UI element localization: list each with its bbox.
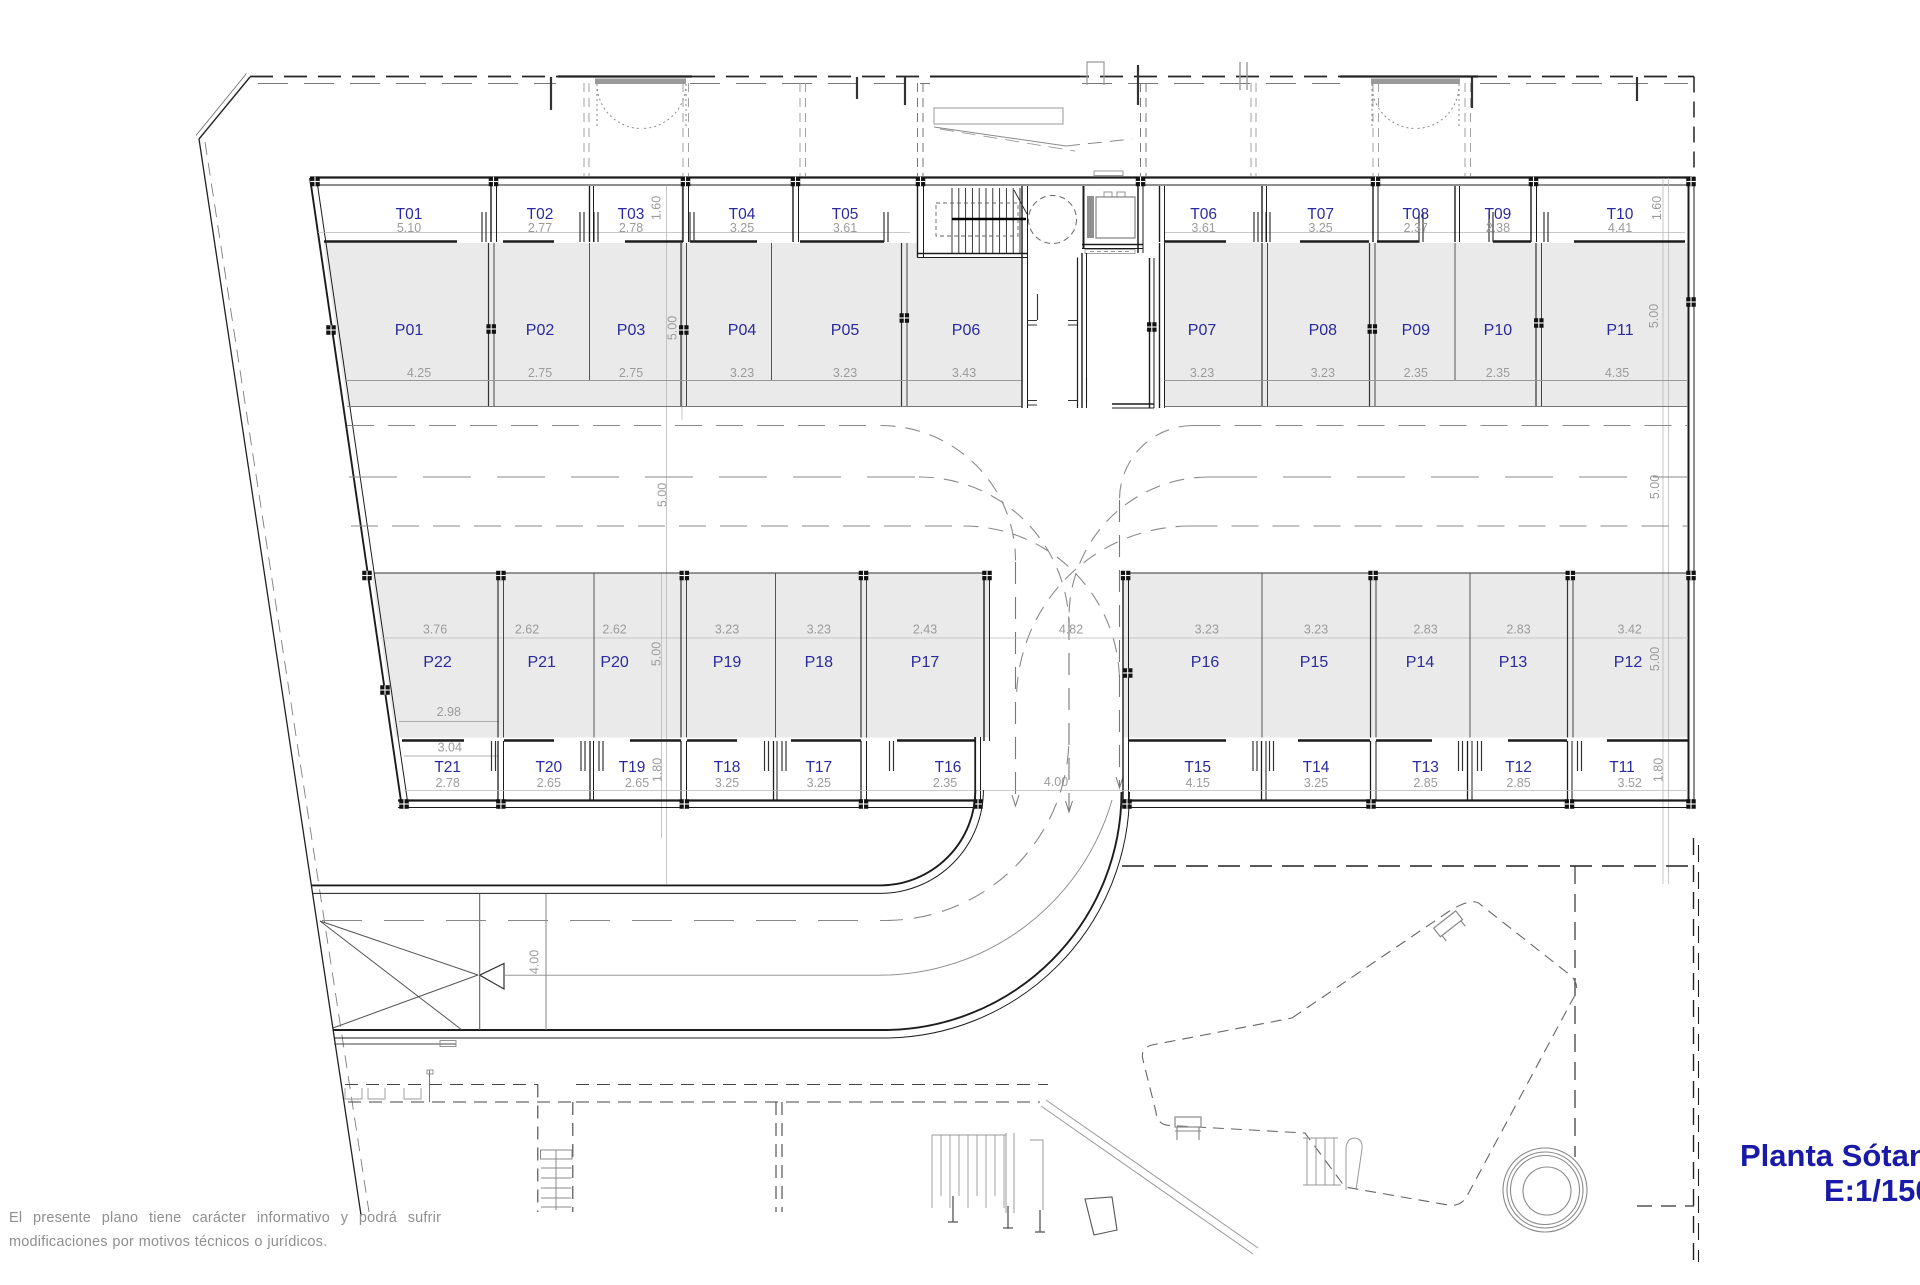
svg-text:2.75: 2.75 [528,366,552,380]
svg-text:P02: P02 [526,322,555,339]
svg-text:T12: T12 [1505,759,1532,776]
svg-text:modificaciones por motivos téc: modificaciones por motivos técnicos o ju… [9,1234,327,1250]
svg-text:3.23: 3.23 [715,623,739,637]
svg-text:P11: P11 [1606,322,1633,339]
svg-text:4.15: 4.15 [1186,776,1210,790]
svg-text:2.43: 2.43 [913,623,937,637]
svg-text:2.62: 2.62 [602,623,626,637]
svg-text:3.25: 3.25 [715,776,739,790]
svg-text:2.83: 2.83 [1506,623,1530,637]
svg-text:2.77: 2.77 [528,221,552,235]
svg-text:P04: P04 [728,322,757,339]
svg-text:P14: P14 [1406,654,1435,671]
svg-text:P07: P07 [1188,322,1217,339]
svg-text:3.52: 3.52 [1618,776,1642,790]
svg-text:P05: P05 [831,322,860,339]
svg-text:El presente plano tiene caráct: El presente plano tiene carácter informa… [9,1210,441,1226]
svg-text:3.25: 3.25 [1308,221,1332,235]
svg-text:5.00: 5.00 [666,316,680,340]
svg-text:P20: P20 [600,654,629,671]
svg-text:T21: T21 [434,759,461,776]
svg-text:3.23: 3.23 [1190,366,1214,380]
svg-text:T13: T13 [1412,759,1439,776]
svg-text:Planta Sótano: Planta Sótano [1740,1138,1920,1173]
svg-text:P17: P17 [911,654,940,671]
svg-text:1.60: 1.60 [1650,196,1664,220]
svg-text:P01: P01 [395,322,424,339]
svg-text:T17: T17 [805,759,832,776]
svg-text:E:1/150: E:1/150 [1824,1173,1920,1208]
svg-text:3.61: 3.61 [1191,221,1215,235]
svg-text:2.85: 2.85 [1413,776,1437,790]
svg-text:1.80: 1.80 [1652,758,1666,782]
svg-text:4.00: 4.00 [527,950,541,974]
svg-text:3.23: 3.23 [833,366,857,380]
svg-text:4.41: 4.41 [1608,221,1632,235]
svg-text:3.25: 3.25 [807,776,831,790]
svg-text:3.25: 3.25 [1304,776,1328,790]
svg-text:1.60: 1.60 [650,196,664,220]
svg-text:2.65: 2.65 [537,776,561,790]
svg-text:5.00: 5.00 [1648,475,1662,499]
svg-text:4.25: 4.25 [407,366,431,380]
svg-text:P21: P21 [527,654,556,671]
svg-text:P18: P18 [805,654,834,671]
svg-text:5.00: 5.00 [656,483,670,507]
svg-text:3.25: 3.25 [730,221,754,235]
svg-text:P10: P10 [1484,322,1513,339]
svg-text:2.35: 2.35 [933,776,957,790]
svg-text:3.04: 3.04 [438,741,462,755]
svg-text:2.38: 2.38 [1486,221,1510,235]
svg-text:2.62: 2.62 [515,623,539,637]
svg-text:3.23: 3.23 [1195,623,1219,637]
svg-text:P06: P06 [952,322,981,339]
svg-text:5.10: 5.10 [397,221,421,235]
svg-text:P22: P22 [423,654,452,671]
svg-text:2.35: 2.35 [1486,366,1510,380]
svg-text:P13: P13 [1499,654,1528,671]
svg-text:P08: P08 [1309,322,1338,339]
svg-text:2.78: 2.78 [436,776,460,790]
svg-text:2.98: 2.98 [437,705,461,719]
svg-text:P19: P19 [713,654,742,671]
svg-text:P03: P03 [617,322,646,339]
svg-text:T20: T20 [535,759,562,776]
svg-text:2.35: 2.35 [1404,366,1428,380]
svg-text:T19: T19 [619,759,646,776]
svg-text:2.83: 2.83 [1413,623,1437,637]
svg-text:P15: P15 [1300,654,1329,671]
svg-text:2.65: 2.65 [625,776,649,790]
svg-text:3.61: 3.61 [833,221,857,235]
svg-text:5.00: 5.00 [650,642,664,666]
svg-text:3.23: 3.23 [1304,623,1328,637]
svg-text:1.80: 1.80 [651,758,665,782]
svg-text:2.75: 2.75 [619,366,643,380]
svg-text:3.23: 3.23 [1311,366,1335,380]
svg-text:T15: T15 [1184,759,1211,776]
svg-text:2.37: 2.37 [1404,221,1428,235]
svg-text:3.42: 3.42 [1618,623,1642,637]
svg-text:3.76: 3.76 [423,623,447,637]
svg-text:T16: T16 [935,759,962,776]
svg-text:4.82: 4.82 [1059,623,1083,637]
svg-text:P12: P12 [1614,654,1643,671]
svg-text:4.35: 4.35 [1605,366,1629,380]
svg-text:2.78: 2.78 [619,221,643,235]
svg-text:T11: T11 [1609,759,1635,776]
svg-text:3.23: 3.23 [807,623,831,637]
svg-text:T18: T18 [714,759,741,776]
svg-text:5.00: 5.00 [1647,304,1661,328]
svg-text:T14: T14 [1303,759,1330,776]
svg-text:3.23: 3.23 [730,366,754,380]
svg-text:P16: P16 [1191,654,1220,671]
svg-text:P09: P09 [1402,322,1431,339]
svg-text:3.43: 3.43 [952,366,976,380]
svg-text:5.00: 5.00 [1648,647,1662,671]
svg-text:2.85: 2.85 [1506,776,1530,790]
